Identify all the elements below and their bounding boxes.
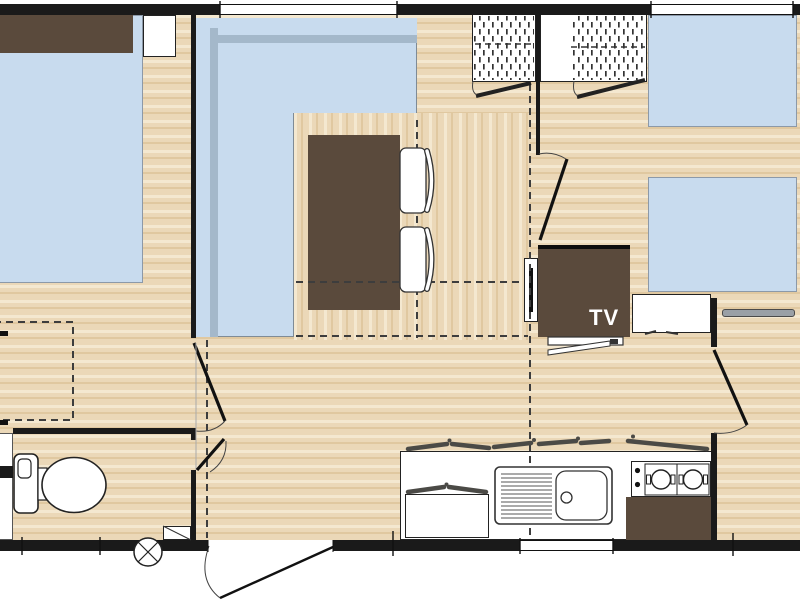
wardrobe-door-right <box>574 80 646 97</box>
entrance-door <box>205 546 333 598</box>
floor-plan: TV <box>0 0 800 600</box>
hallway-door <box>539 153 567 240</box>
chair-1-icon <box>400 148 432 213</box>
hob-icon <box>635 464 709 495</box>
faucet-icon <box>561 492 572 503</box>
wardrobe-hatch-right <box>571 16 645 80</box>
twin-bedroom-door <box>714 350 747 433</box>
hob-knob <box>635 482 640 487</box>
wardrobe-door-left <box>473 81 532 96</box>
storage-dashed-zone <box>0 322 73 420</box>
master-bedroom-door <box>194 343 225 470</box>
tv-label: TV <box>589 305 619 331</box>
sink-icon <box>495 467 612 524</box>
tv-shelf <box>548 337 623 355</box>
hob-knob <box>635 468 640 473</box>
doors <box>194 80 747 598</box>
plan-linework <box>0 0 800 600</box>
chair-2-icon <box>400 227 432 292</box>
toilet-icon <box>14 454 106 513</box>
bathroom-door <box>197 439 226 472</box>
wardrobe-hatch-left <box>474 16 534 80</box>
step-icon <box>134 538 162 566</box>
bathroom-corner-diagonal <box>163 526 191 540</box>
foot-cabinet-handles <box>645 331 678 334</box>
